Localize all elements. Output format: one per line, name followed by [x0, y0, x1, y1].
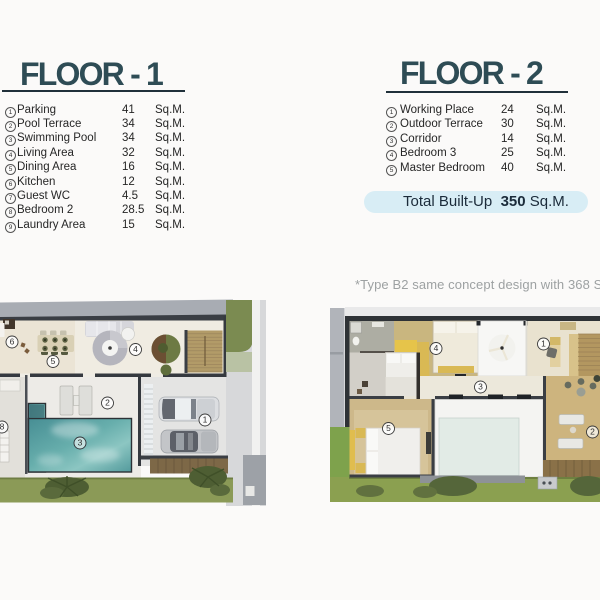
svg-text:1: 1	[203, 415, 208, 425]
svg-text:5: 5	[51, 356, 56, 366]
svg-text:4: 4	[434, 343, 439, 353]
svg-text:5: 5	[386, 423, 391, 433]
svg-text:2: 2	[105, 398, 110, 408]
svg-text:4: 4	[133, 344, 138, 354]
svg-text:6: 6	[10, 337, 15, 347]
svg-text:1: 1	[541, 339, 546, 349]
svg-text:2: 2	[590, 427, 595, 437]
svg-text:3: 3	[478, 382, 483, 392]
svg-text:3: 3	[78, 438, 83, 448]
svg-text:8: 8	[0, 422, 5, 432]
